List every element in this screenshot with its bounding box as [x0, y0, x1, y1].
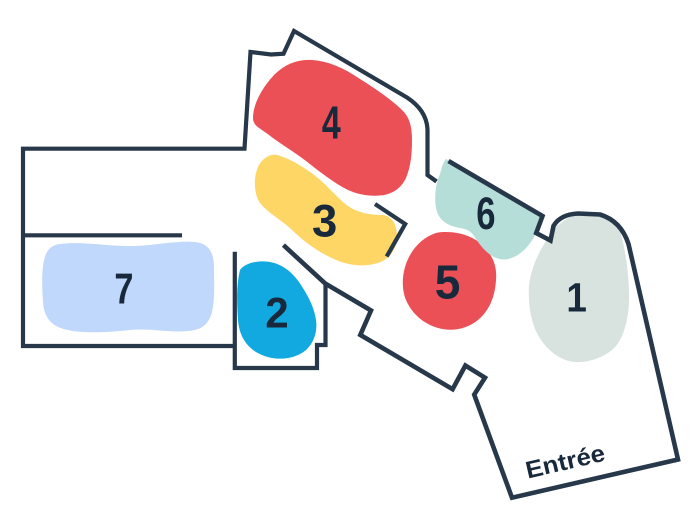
- svg-text:1: 1: [566, 276, 587, 321]
- svg-text:6: 6: [476, 189, 495, 239]
- svg-text:2: 2: [265, 289, 288, 336]
- svg-text:5: 5: [435, 254, 461, 308]
- svg-text:4: 4: [322, 96, 341, 149]
- svg-text:7: 7: [114, 264, 133, 313]
- svg-text:3: 3: [312, 196, 337, 247]
